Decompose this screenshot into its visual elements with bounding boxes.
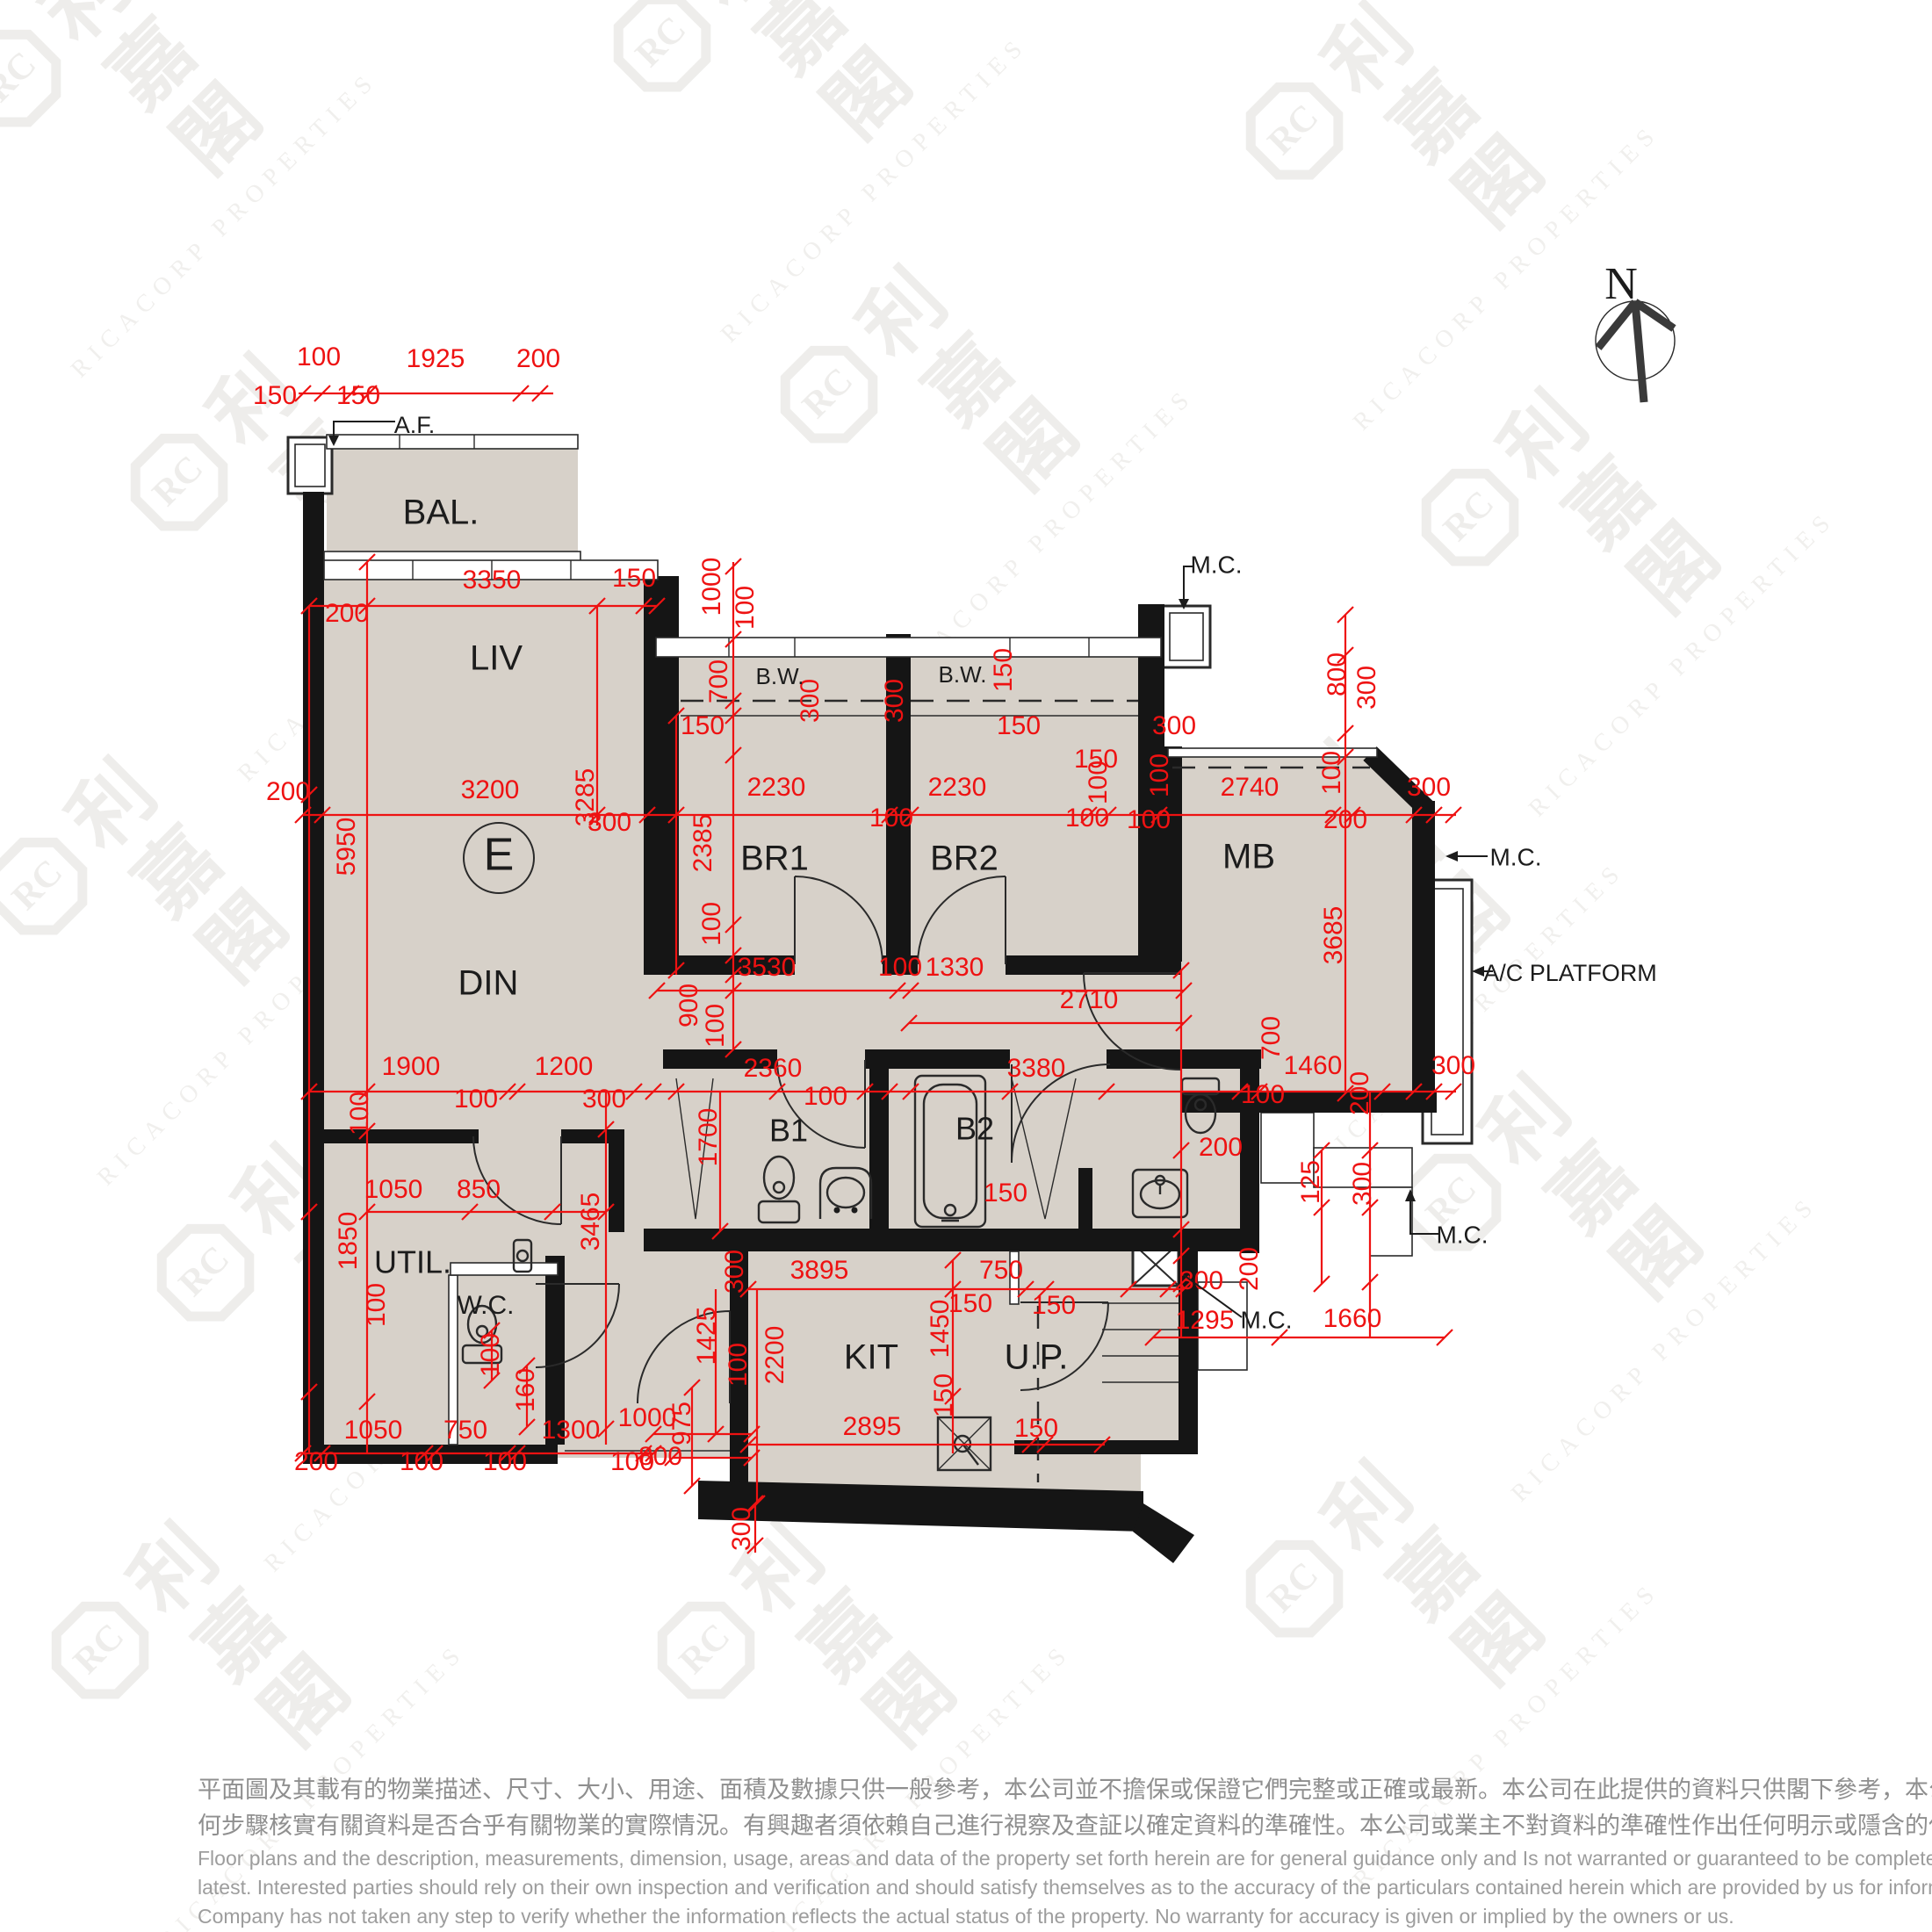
dim-label-2230: 2230 xyxy=(928,773,987,802)
dim-label-150: 150 xyxy=(253,381,297,410)
dim-label-1330: 1330 xyxy=(926,953,984,982)
dim-label-150: 150 xyxy=(948,1289,992,1318)
dim-label-100: 100 xyxy=(869,804,913,833)
dim-label-1460: 1460 xyxy=(1284,1051,1343,1080)
dim-label-1050: 1050 xyxy=(344,1416,403,1445)
dim-label-200: 200 xyxy=(325,599,369,628)
disclaimer-en-line1: Floor plans and the description, measure… xyxy=(198,1844,1761,1873)
dim-label-100: 100 xyxy=(483,1447,527,1476)
dim-label-100: 100 xyxy=(724,1343,753,1387)
dim-label-300: 300 xyxy=(1352,666,1381,710)
dim-label-100: 100 xyxy=(1241,1080,1285,1109)
room-label-util: UTIL. xyxy=(374,1244,451,1280)
dim-label-300: 300 xyxy=(880,679,909,723)
annotation-acplatform: A/C PLATFORM xyxy=(1483,960,1657,986)
dim-label-150: 150 xyxy=(997,711,1041,740)
dim-label-100: 100 xyxy=(1317,751,1346,795)
dim-label-1900: 1900 xyxy=(382,1052,441,1081)
dim-label-3350: 3350 xyxy=(463,566,522,595)
dim-label-300: 300 xyxy=(588,808,631,837)
dim-label-1000: 1000 xyxy=(697,558,726,616)
dim-label-100: 100 xyxy=(362,1283,391,1327)
dim-label-300: 300 xyxy=(1431,1051,1475,1080)
room-label-up: U.P. xyxy=(1005,1338,1069,1377)
dim-label-100: 100 xyxy=(1084,761,1113,804)
annotation-mc: M.C. xyxy=(1436,1221,1488,1248)
dim-label-2895: 2895 xyxy=(843,1412,902,1441)
dim-label-200: 200 xyxy=(266,777,310,806)
dim-label-200: 200 xyxy=(1235,1247,1264,1291)
dim-label-100: 100 xyxy=(701,1004,730,1048)
dim-label-1850: 1850 xyxy=(334,1212,363,1271)
dim-label-1000: 1000 xyxy=(618,1403,677,1432)
dim-label-150: 150 xyxy=(1014,1414,1058,1443)
dim-label-3465: 3465 xyxy=(576,1193,605,1251)
af-box-inner xyxy=(295,444,325,487)
dim-label-5950: 5950 xyxy=(332,818,361,876)
dim-label-300: 300 xyxy=(1407,773,1451,802)
dim-label-300: 300 xyxy=(1152,711,1196,740)
disclaimer-zh-line2: 何步驟核實有關資料是否合乎有關物業的實際情況。有興趣者須依賴自己進行視察及查証以… xyxy=(198,1808,1761,1844)
annotation-mc: M.C. xyxy=(1240,1306,1292,1333)
dim-label-1200: 1200 xyxy=(535,1052,594,1081)
dim-label-1425: 1425 xyxy=(692,1307,721,1366)
dim-label-150: 150 xyxy=(984,1179,1027,1207)
dim-label-1450: 1450 xyxy=(926,1300,955,1359)
dim-label-160: 160 xyxy=(511,1368,540,1412)
mc-box-top-inner xyxy=(1170,613,1203,660)
dim-label-2385: 2385 xyxy=(688,814,717,873)
dim-label-100: 100 xyxy=(297,342,341,371)
dim-label-1700: 1700 xyxy=(694,1108,723,1167)
dim-label-300: 300 xyxy=(727,1507,756,1551)
dim-label-900: 900 xyxy=(674,984,703,1027)
dim-label-100: 100 xyxy=(400,1447,443,1476)
dim-label-150: 150 xyxy=(989,648,1018,692)
dim-label-3200: 3200 xyxy=(461,775,520,804)
dim-label-3380: 3380 xyxy=(1007,1054,1066,1083)
dim-label-3530: 3530 xyxy=(738,953,797,982)
dim-label-800: 800 xyxy=(638,1442,682,1471)
room-label-br2: BR2 xyxy=(930,840,998,878)
dim-label-2360: 2360 xyxy=(744,1054,803,1083)
disclaimer-en-line2: latest. Interested parties should rely o… xyxy=(198,1873,1761,1902)
dim-label-100: 100 xyxy=(1127,805,1171,834)
room-label-din: DIN xyxy=(458,964,519,1003)
north-arrow: N xyxy=(1596,259,1675,402)
dim-label-300: 300 xyxy=(720,1250,749,1294)
floor-plan-page: RC利嘉閣RICACORP PROPERTIESRC利嘉閣RICACORP PR… xyxy=(0,0,1932,1932)
dim-label-2230: 2230 xyxy=(747,773,806,802)
dim-label-100: 100 xyxy=(878,953,922,982)
dim-label-200: 200 xyxy=(1199,1133,1243,1162)
dim-label-100: 100 xyxy=(1065,804,1109,833)
dim-label-1660: 1660 xyxy=(1323,1304,1382,1333)
disclaimer: 平面圖及其載有的物業描述、尺寸、大小、用途、面積及數據只供一般參考，本公司並不擔… xyxy=(198,1772,1761,1931)
dim-label-100: 100 xyxy=(697,902,726,946)
dim-label-100: 100 xyxy=(476,1333,505,1377)
dim-label-1050: 1050 xyxy=(364,1175,423,1204)
dim-label-2710: 2710 xyxy=(1060,985,1119,1014)
room-label-b2: B2 xyxy=(955,1111,994,1147)
dim-label-2200: 2200 xyxy=(761,1326,789,1385)
disclaimer-zh-line1: 平面圖及其載有的物業描述、尺寸、大小、用途、面積及數據只供一般參考，本公司並不擔… xyxy=(198,1772,1761,1808)
dim-label-200: 200 xyxy=(294,1447,338,1476)
dim-label-200: 200 xyxy=(516,344,560,373)
dim-label-1925: 1925 xyxy=(407,344,465,373)
dim-label-150: 150 xyxy=(1032,1291,1076,1320)
dim-label-200: 200 xyxy=(1323,805,1367,834)
dim-label-100: 100 xyxy=(804,1082,847,1111)
dim-label-150: 150 xyxy=(681,711,724,740)
dim-label-3685: 3685 xyxy=(1319,906,1348,965)
dim-label-100: 100 xyxy=(731,586,760,630)
dim-label-1300: 1300 xyxy=(542,1416,601,1445)
dim-label-800: 800 xyxy=(1323,652,1352,696)
room-label-br1: BR1 xyxy=(740,840,809,878)
dim-label-300: 300 xyxy=(1348,1162,1377,1206)
room-label-liv: LIV xyxy=(470,639,523,678)
dim-label-850: 850 xyxy=(457,1175,501,1204)
dim-label-100: 100 xyxy=(454,1085,498,1114)
dim-label-750: 750 xyxy=(443,1416,487,1445)
annotation-bw: B.W. xyxy=(939,661,987,688)
dim-label-700: 700 xyxy=(1257,1016,1286,1060)
dim-label-1295: 1295 xyxy=(1176,1306,1235,1335)
dim-label-150: 150 xyxy=(336,381,380,410)
dim-label-750: 750 xyxy=(979,1256,1023,1285)
annotation-mc: M.C. xyxy=(1489,843,1541,870)
dim-label-150: 150 xyxy=(612,564,656,593)
dim-label-2740: 2740 xyxy=(1221,773,1280,802)
dim-label-150: 150 xyxy=(929,1373,958,1417)
dim-label-200: 200 xyxy=(1345,1071,1374,1115)
room-label-b1: B1 xyxy=(769,1113,808,1149)
room-label-bal: BAL. xyxy=(403,494,479,532)
room-label-wc: W.C. xyxy=(458,1291,515,1320)
floor-plan-drawing: 1001925200150150335015020010001002003200… xyxy=(0,0,1932,1932)
annotation-af: A.F. xyxy=(394,412,436,438)
dim-label-300: 300 xyxy=(1179,1266,1223,1295)
dim-label-100: 100 xyxy=(1145,753,1174,797)
dim-label-3895: 3895 xyxy=(790,1256,849,1285)
dim-label-300: 300 xyxy=(582,1085,626,1114)
dim-label-125: 125 xyxy=(1296,1160,1325,1204)
room-label-kit: KIT xyxy=(844,1338,898,1377)
dim-label-700: 700 xyxy=(704,660,733,703)
annotation-mc: M.C. xyxy=(1190,551,1242,578)
annotation-bw: B.W. xyxy=(756,663,804,689)
room-label-e: E xyxy=(484,830,515,881)
room-label-mb: MB xyxy=(1222,838,1275,876)
disclaimer-en-line3: Company has not taken any step to verify… xyxy=(198,1902,1761,1931)
dim-label-100: 100 xyxy=(345,1092,374,1135)
